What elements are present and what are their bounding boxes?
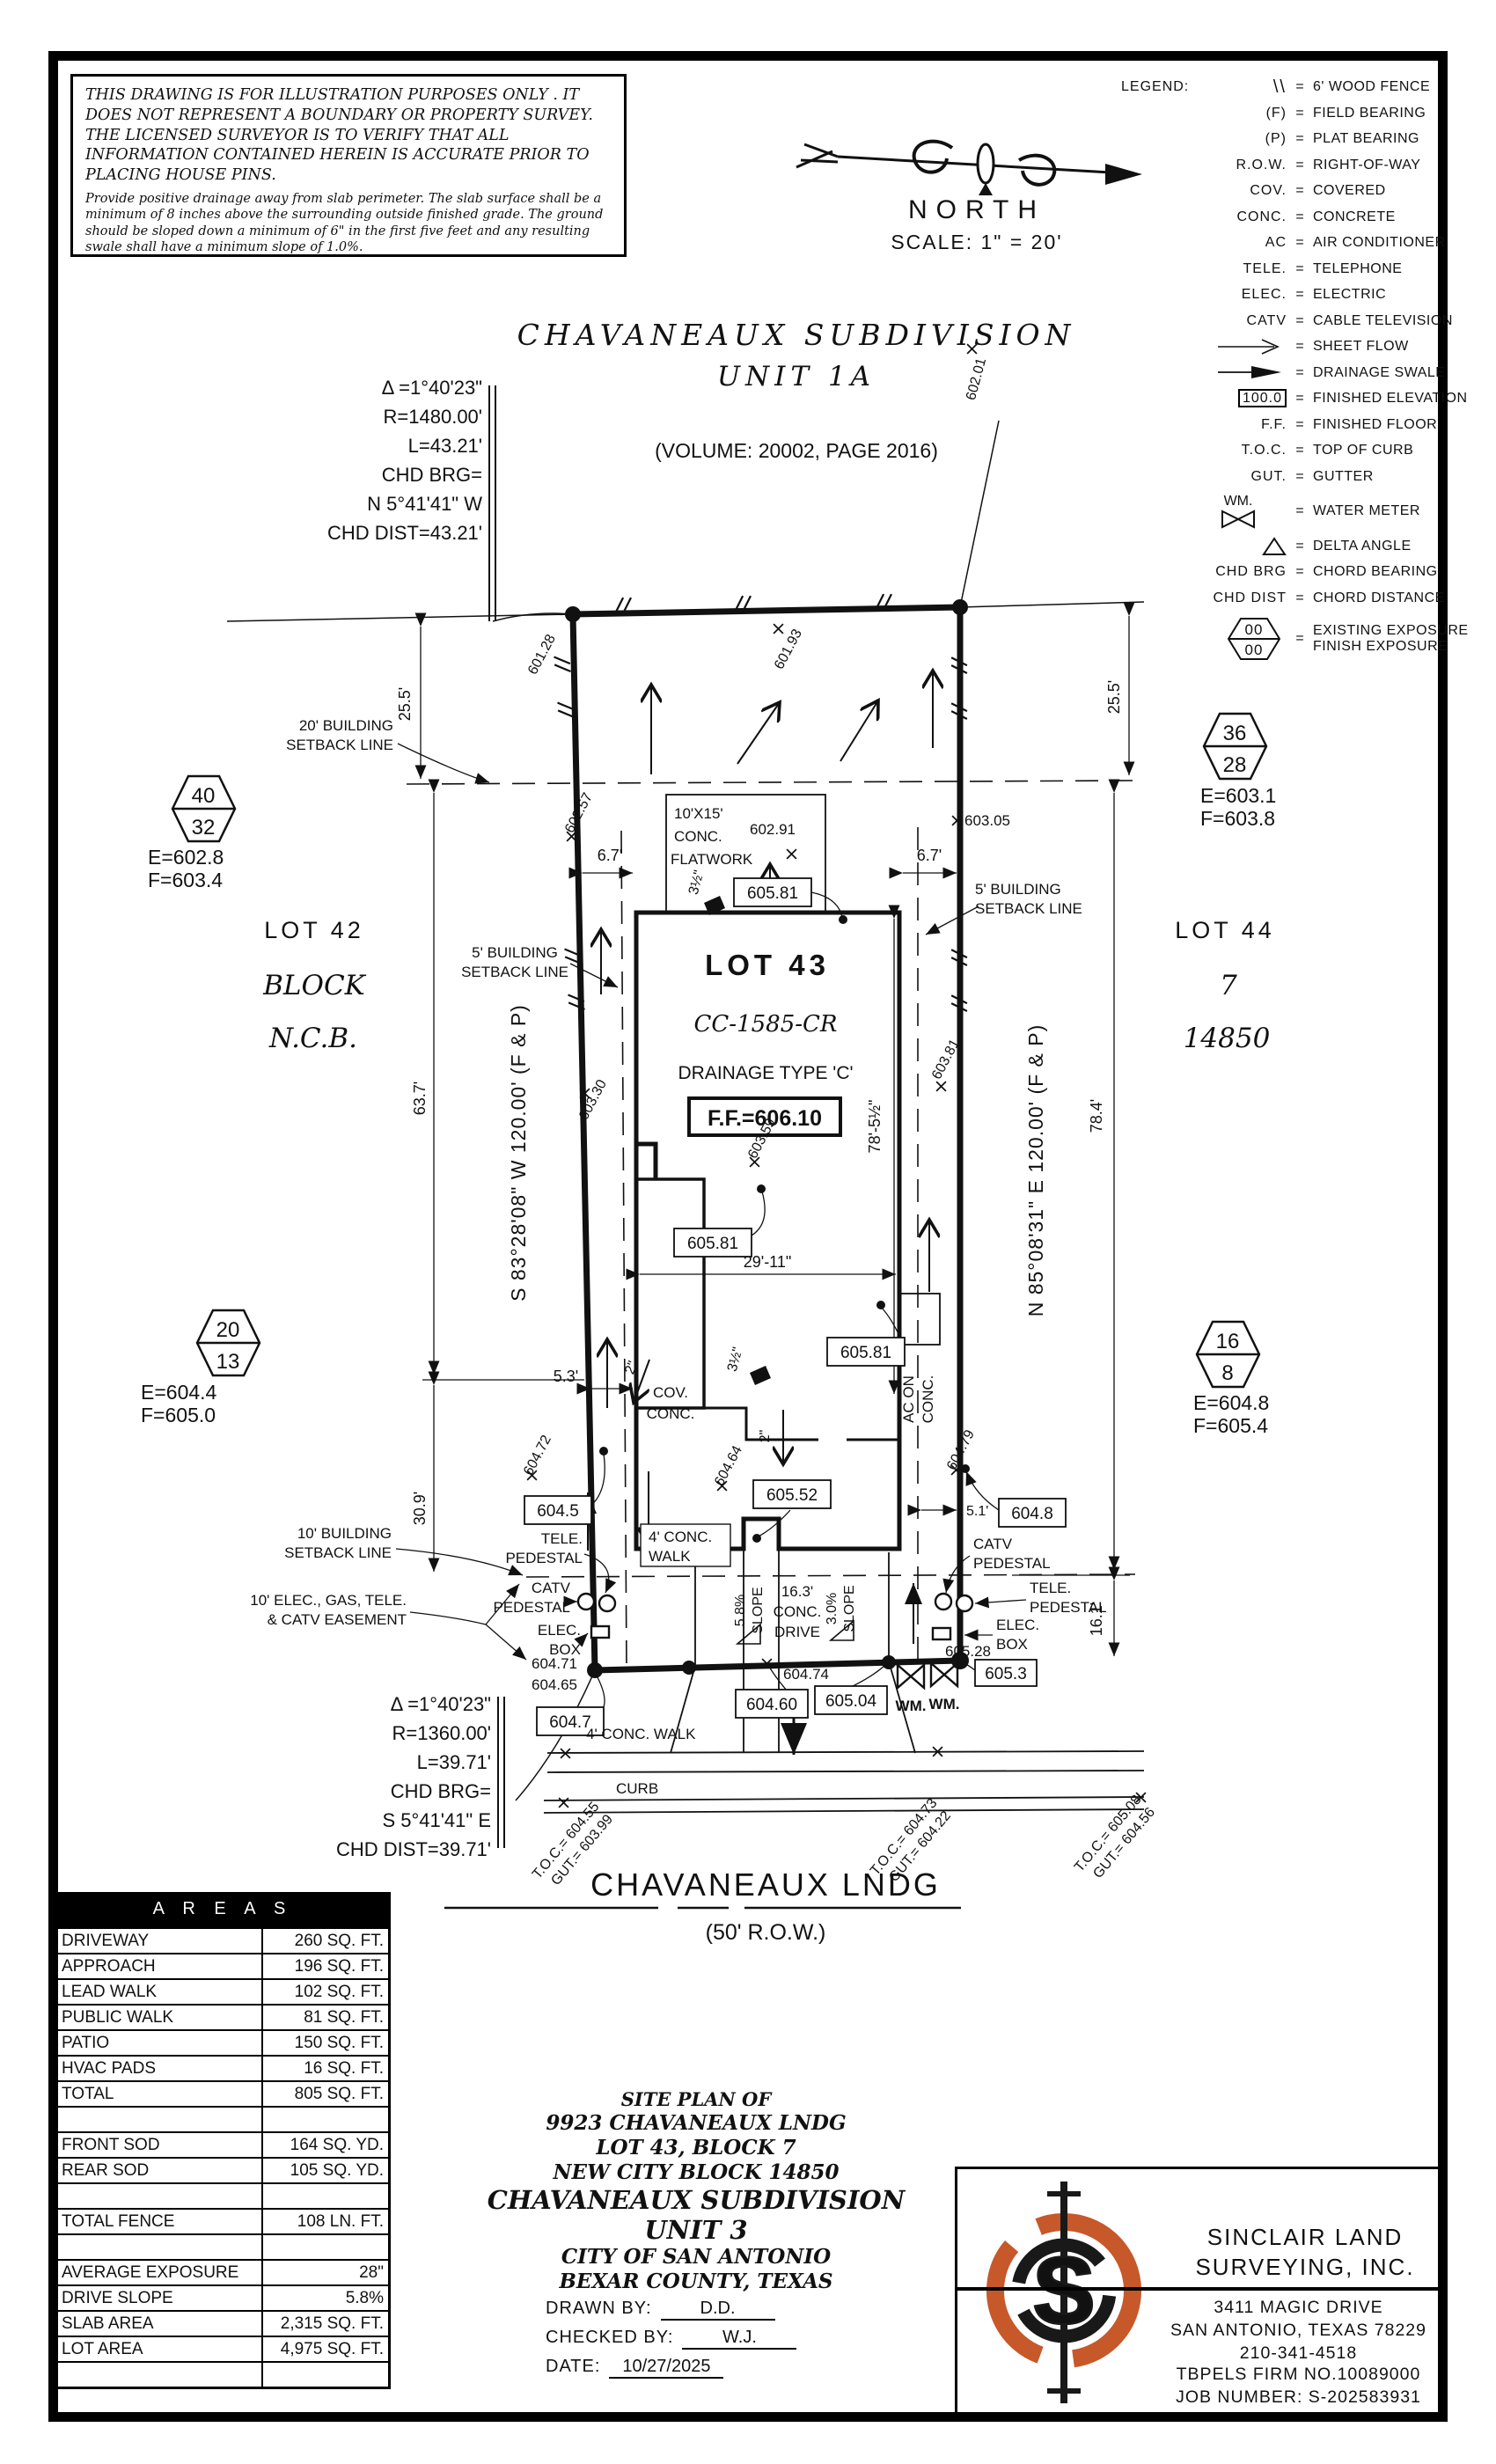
subdivision-title: CHAVANEAUX SUBDIVISION <box>517 318 1076 352</box>
svg-text:FLATWORK: FLATWORK <box>671 851 753 868</box>
svg-text:605.81: 605.81 <box>747 884 798 903</box>
svg-text:CATV: CATV <box>973 1536 1013 1552</box>
svg-text:10' ELEC., GAS, TELE.: 10' ELEC., GAS, TELE. <box>250 1592 407 1609</box>
firm-divider <box>957 2287 1442 2291</box>
svg-text:CHD DIST=43.21': CHD DIST=43.21' <box>327 522 482 544</box>
svg-text:8: 8 <box>1221 1361 1233 1385</box>
date-label: DATE: <box>546 2357 600 2377</box>
svg-text:601.28: 601.28 <box>525 632 559 677</box>
svg-text:605.28: 605.28 <box>945 1643 991 1660</box>
svg-text:32: 32 <box>192 816 216 840</box>
svg-text:601.93: 601.93 <box>772 627 805 671</box>
checked-by-label: CHECKED BY: <box>546 2328 673 2348</box>
svg-text:SETBACK LINE: SETBACK LINE <box>284 1544 392 1561</box>
table-row <box>56 2107 390 2132</box>
firm-tbpels: TBPELS FIRM NO.10089000 <box>1155 2365 1441 2385</box>
svg-text:5.3': 5.3' <box>554 1368 578 1385</box>
svg-text:78'-5½": 78'-5½" <box>866 1100 884 1154</box>
firm-address-2: SAN ANTONIO, TEXAS 78229 <box>1155 2321 1441 2341</box>
sinclair-logo: S <box>963 2169 1174 2416</box>
svg-text:604.60: 604.60 <box>746 1696 797 1714</box>
titleblock-line: NEW CITY BLOCK 14850 <box>480 2160 913 2185</box>
titleblock-line: BEXAR COUNTY, TEXAS <box>480 2270 913 2294</box>
exposure-hexagon-nw: 40 32 E=602.8 F=603.4 <box>148 776 235 891</box>
titleblock-line: LOT 43, BLOCK 7 <box>480 2136 913 2160</box>
svg-text:Δ =1°40'23": Δ =1°40'23" <box>391 1693 491 1715</box>
svg-text:604.65: 604.65 <box>532 1676 577 1693</box>
table-row: PATIO150 SQ. FT. <box>56 2030 390 2056</box>
lot-44-label: LOT 44 <box>1175 917 1275 943</box>
drawn-by-value: D.D. <box>661 2299 775 2321</box>
lot-boundary <box>227 421 1144 1670</box>
svg-text:6.7': 6.7' <box>598 847 622 864</box>
svg-text:605.81: 605.81 <box>687 1235 738 1253</box>
svg-text:25.5': 25.5' <box>396 687 414 721</box>
bearing-east: N 85°08'31" E 120.00' (F & P) <box>1024 1024 1047 1317</box>
areas-table: A R E A S DRIVEWAY260 SQ. FT. APPROACH19… <box>55 1892 391 2389</box>
svg-text:WM.: WM. <box>929 1696 960 1712</box>
svg-text:10' BUILDING: 10' BUILDING <box>297 1525 392 1542</box>
table-row: REAR SOD105 SQ. YD. <box>56 2158 390 2183</box>
svg-text:16: 16 <box>1216 1330 1240 1353</box>
titleblock-line: CITY OF SAN ANTONIO <box>480 2245 913 2270</box>
fence-hash-marks <box>1 1 967 1011</box>
svg-text:603.05: 603.05 <box>964 812 1010 829</box>
svg-text:16.3': 16.3' <box>781 1583 813 1600</box>
svg-text:TELE.: TELE. <box>1030 1580 1071 1596</box>
svg-text:5.8%: 5.8% <box>733 1595 748 1626</box>
svg-text:L=39.71': L=39.71' <box>417 1751 491 1773</box>
svg-text:CURB: CURB <box>616 1780 658 1797</box>
svg-text:605.81: 605.81 <box>840 1344 891 1362</box>
street-row: (50' R.O.W.) <box>706 1920 826 1945</box>
svg-text:604.72: 604.72 <box>521 1433 554 1478</box>
north-arrow-icon <box>796 142 1142 195</box>
svg-text:604.74: 604.74 <box>783 1666 829 1683</box>
table-row: SLAB AREA2,315 SQ. FT. <box>56 2311 390 2336</box>
svg-text:E=604.4: E=604.4 <box>141 1381 217 1404</box>
checked-by-value: W.J. <box>682 2328 796 2350</box>
svg-text:CONC.: CONC. <box>647 1405 695 1422</box>
svg-text:BOX: BOX <box>549 1641 581 1658</box>
svg-text:3½": 3½" <box>686 869 708 896</box>
svg-text:3½": 3½" <box>725 1346 746 1373</box>
lot-code: CC-1585-CR <box>694 1011 838 1038</box>
svg-text:20: 20 <box>216 1318 240 1342</box>
table-row: HVAC PADS16 SQ. FT. <box>56 2056 390 2081</box>
svg-text:CONC.: CONC. <box>674 828 722 845</box>
svg-text:602.01: 602.01 <box>964 356 989 402</box>
firm-phone: 210-341-4518 <box>1155 2343 1441 2364</box>
svg-text:5' BUILDING: 5' BUILDING <box>975 881 1061 898</box>
curve-data-bottom: Δ =1°40'23" R=1360.00' L=39.71' CHD BRG=… <box>336 1670 595 1860</box>
block-number: 7 <box>1220 970 1237 1001</box>
title-block: SITE PLAN OF 9923 CHAVANEAUX LNDG LOT 43… <box>480 2087 913 2294</box>
svg-text:SLOPE: SLOPE <box>751 1587 766 1633</box>
svg-text:602.57: 602.57 <box>562 790 596 835</box>
svg-text:605.04: 605.04 <box>825 1692 877 1711</box>
svg-text:36: 36 <box>1223 722 1247 745</box>
svg-text:PEDESTAL: PEDESTAL <box>505 1550 583 1566</box>
svg-text:R=1480.00': R=1480.00' <box>384 406 482 428</box>
svg-text:E=603.1: E=603.1 <box>1200 784 1276 807</box>
exposure-hexagon-se: 16 8 E=604.8 F=605.4 <box>1193 1322 1269 1437</box>
svg-text:CATV: CATV <box>532 1580 571 1596</box>
ncb-word: N.C.B. <box>268 1023 357 1054</box>
table-row: DRIVEWAY260 SQ. FT. <box>56 1928 390 1954</box>
firm-block: S SINCLAIR LAND SURVEYING, INC. 3411 MAG… <box>955 2167 1445 2418</box>
table-row: TOTAL FENCE108 LN. FT. <box>56 2209 390 2234</box>
street-name: CHAVANEAUX LNDG <box>590 1866 941 1903</box>
svg-text:S 5°41'41" E: S 5°41'41" E <box>382 1809 491 1831</box>
lot-43-label: LOT 43 <box>705 949 830 981</box>
svg-text:ELEC.: ELEC. <box>538 1622 581 1639</box>
svg-text:CHD BRG=: CHD BRG= <box>382 464 482 486</box>
table-row: TOTAL805 SQ. FT. <box>56 2081 390 2107</box>
titleblock-line: CHAVANEAUX SUBDIVISION <box>480 2185 913 2215</box>
table-row: DRIVE SLOPE5.8% <box>56 2285 390 2311</box>
svg-text:CONC.: CONC. <box>920 1375 936 1424</box>
svg-text:605.3: 605.3 <box>985 1665 1027 1683</box>
svg-text:5.1': 5.1' <box>966 1504 988 1519</box>
svg-text:3.0%: 3.0% <box>825 1593 840 1624</box>
svg-text:40: 40 <box>192 784 216 808</box>
svg-text:25.5': 25.5' <box>1105 680 1123 714</box>
table-row: LEAD WALK102 SQ. FT. <box>56 1979 390 2005</box>
svg-text:WM.: WM. <box>896 1698 927 1714</box>
svg-text:SETBACK LINE: SETBACK LINE <box>975 900 1082 917</box>
lot-42-label: LOT 42 <box>264 917 364 943</box>
svg-text:5' BUILDING: 5' BUILDING <box>472 944 558 961</box>
svg-text:PEDESTAL: PEDESTAL <box>973 1555 1051 1572</box>
svg-text:E=602.8: E=602.8 <box>148 846 224 869</box>
svg-text:WALK: WALK <box>649 1548 691 1565</box>
svg-text:CHD DIST=39.71': CHD DIST=39.71' <box>336 1838 491 1860</box>
svg-text:2": 2" <box>758 1430 773 1443</box>
table-row: PUBLIC WALK81 SQ. FT. <box>56 2005 390 2030</box>
curve-data-top: Δ =1°40'23" R=1480.00' L=43.21' CHD BRG=… <box>327 377 573 621</box>
svg-text:PEDESTAL: PEDESTAL <box>1030 1599 1107 1616</box>
svg-text:6.7': 6.7' <box>917 847 942 864</box>
svg-text:& CATV EASEMENT: & CATV EASEMENT <box>268 1611 407 1628</box>
svg-text:63.7': 63.7' <box>411 1082 429 1115</box>
svg-text:78.4': 78.4' <box>1088 1099 1105 1133</box>
svg-text:F=605.4: F=605.4 <box>1193 1414 1268 1437</box>
titleblock-line: UNIT 3 <box>480 2215 913 2245</box>
table-row: LOT AREA4,975 SQ. FT. <box>56 2336 390 2362</box>
svg-text:AC ON: AC ON <box>900 1375 917 1423</box>
site-plan-sheet: THIS DRAWING IS FOR ILLUSTRATION PURPOSE… <box>0 0 1496 2464</box>
firm-address-1: 3411 MAGIC DRIVE <box>1155 2298 1441 2318</box>
svg-text:TELE.: TELE. <box>541 1530 583 1547</box>
drawn-by-label: DRAWN BY: <box>546 2299 652 2319</box>
svg-text:13: 13 <box>216 1350 240 1374</box>
firm-name-1: SINCLAIR LAND <box>1169 2224 1441 2251</box>
svg-text:Δ =1°40'23": Δ =1°40'23" <box>382 377 482 399</box>
drainage-type: DRAINAGE TYPE 'C' <box>678 1063 853 1083</box>
signature-block: DRAWN BY:D.D. CHECKED BY:W.J. DATE:10/27… <box>546 2299 862 2386</box>
ncb-number: 14850 <box>1184 1023 1271 1054</box>
svg-text:20' BUILDING: 20' BUILDING <box>299 717 393 734</box>
table-row: AVERAGE EXPOSURE28" <box>56 2260 390 2285</box>
svg-text:604.5: 604.5 <box>537 1502 579 1521</box>
subdivision-volume: (VOLUME: 20002, PAGE 2016) <box>655 439 938 462</box>
svg-text:604.64: 604.64 <box>712 1443 745 1488</box>
firm-job-number: JOB NUMBER: S-202583931 <box>1155 2387 1441 2408</box>
svg-text:SLOPE: SLOPE <box>842 1585 857 1632</box>
svg-text:ELEC.: ELEC. <box>996 1617 1039 1633</box>
svg-text:F=603.8: F=603.8 <box>1200 807 1275 830</box>
leader-dots <box>599 915 970 1543</box>
table-row <box>56 2362 390 2388</box>
svg-text:4' CONC. WALK: 4' CONC. WALK <box>586 1726 696 1742</box>
table-row <box>56 2183 390 2209</box>
areas-table-title: A R E A S <box>55 1892 391 1926</box>
svg-text:E=604.8: E=604.8 <box>1193 1391 1269 1414</box>
bearing-west: S 83°28'08" W 120.00' (F & P) <box>507 1004 530 1302</box>
svg-text:CONC.: CONC. <box>774 1603 822 1620</box>
exposure-hexagon-ne: 36 28 E=603.1 F=603.8 <box>1200 714 1276 830</box>
svg-text:604.7: 604.7 <box>549 1713 591 1732</box>
svg-text:R=1360.00': R=1360.00' <box>392 1722 491 1744</box>
block-word: BLOCK <box>262 970 367 1001</box>
svg-text:L=43.21': L=43.21' <box>408 435 482 457</box>
exposure-hexagon-sw: 20 13 E=604.4 F=605.0 <box>141 1310 260 1426</box>
svg-text:CHD BRG=: CHD BRG= <box>391 1780 491 1802</box>
svg-text:SETBACK LINE: SETBACK LINE <box>461 964 568 980</box>
svg-text:N 5°41'41" W: N 5°41'41" W <box>367 493 482 515</box>
svg-text:30.9': 30.9' <box>411 1492 429 1525</box>
svg-text:COV.: COV. <box>653 1384 688 1401</box>
svg-text:BOX: BOX <box>996 1636 1028 1653</box>
svg-text:PEDESTAL: PEDESTAL <box>493 1599 570 1616</box>
svg-text:10'X15': 10'X15' <box>674 805 723 822</box>
firm-name-2: SURVEYING, INC. <box>1169 2254 1441 2281</box>
svg-text:DRIVE: DRIVE <box>774 1624 820 1640</box>
svg-text:28: 28 <box>1223 753 1247 777</box>
table-row: APPROACH196 SQ. FT. <box>56 1954 390 1979</box>
svg-text:F=603.4: F=603.4 <box>148 869 223 891</box>
table-row: FRONT SOD164 SQ. YD. <box>56 2132 390 2158</box>
table-row <box>56 2234 390 2260</box>
svg-text:F=605.0: F=605.0 <box>141 1404 216 1426</box>
svg-text:SETBACK LINE: SETBACK LINE <box>286 737 393 753</box>
svg-text:604.8: 604.8 <box>1011 1505 1053 1523</box>
titleblock-line: 9923 CHAVANEAUX LNDG <box>480 2111 913 2136</box>
subdivision-unit: UNIT 1A <box>717 361 876 392</box>
svg-text:605.52: 605.52 <box>766 1486 818 1505</box>
svg-text:4' CONC.: 4' CONC. <box>649 1529 712 1545</box>
date-value: 10/27/2025 <box>609 2357 723 2379</box>
titleblock-line: SITE PLAN OF <box>480 2087 913 2111</box>
svg-text:604.79: 604.79 <box>944 1427 978 1472</box>
street-labels: T.O.C.= 604.55GUT.= 603.99 T.O.C.= 604.7… <box>444 1793 1159 1945</box>
svg-text:602.91: 602.91 <box>750 821 796 838</box>
